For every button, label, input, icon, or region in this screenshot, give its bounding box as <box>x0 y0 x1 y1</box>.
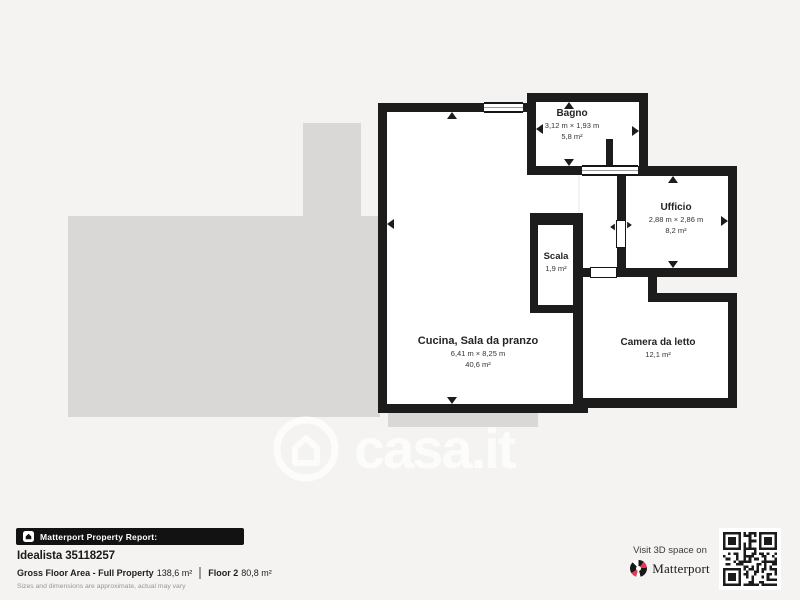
house-circle-icon <box>271 414 341 484</box>
other-floor-silhouette <box>303 123 361 216</box>
direction-arrow-icon <box>447 112 457 119</box>
visit-3d-text: Visit 3D space on <box>612 545 728 556</box>
matterport-logo-icon <box>630 560 647 577</box>
room-area: 5,8 m² <box>545 133 599 141</box>
wall-segment <box>578 398 737 408</box>
room-name: Camera da letto <box>620 337 695 348</box>
disclaimer-text: Sizes and dimensions are approximate, ac… <box>17 583 186 590</box>
room-label-scala: Scala 1,9 m² <box>544 252 569 273</box>
wall-segment <box>378 103 387 413</box>
direction-arrow-icon <box>627 222 632 229</box>
door-marker <box>616 220 626 248</box>
floor-metrics: Gross Floor Area - Full Property 138,6 m… <box>17 567 272 579</box>
direction-arrow-icon <box>447 397 457 404</box>
direction-arrow-icon <box>387 219 394 229</box>
qr-code <box>719 528 781 590</box>
wall-segment <box>617 247 626 268</box>
wall-segment <box>527 166 583 175</box>
room-dimensions: 6,41 m × 8,25 m <box>418 350 538 358</box>
wall-segment <box>639 93 648 175</box>
room-label-cucina: Cucina, Sala da pranzo 6,41 m × 8,25 m 4… <box>418 335 538 369</box>
room-area: 40,6 m² <box>418 361 538 369</box>
room-name: Cucina, Sala da pranzo <box>418 335 538 347</box>
direction-arrow-icon <box>536 124 543 134</box>
matterport-wordmark: Matterport <box>652 561 710 577</box>
room-area: 12,1 m² <box>620 351 695 359</box>
wall-segment <box>527 93 536 175</box>
wall-segment <box>378 103 484 112</box>
gfa-label: Gross Floor Area - Full Property <box>17 568 154 578</box>
room-area: 1,9 m² <box>544 265 569 273</box>
qr-code-image <box>723 532 777 586</box>
window-marker <box>484 102 523 113</box>
listing-id: Idealista 35118257 <box>17 550 115 562</box>
wall-segment <box>728 293 737 408</box>
wall-segment <box>728 166 737 277</box>
room-name: Scala <box>544 252 569 262</box>
floorplan-screenshot: Bagno 3,12 m × 1,93 m 5,8 m² Ufficio 2,8… <box>0 0 800 600</box>
direction-arrow-icon <box>564 159 574 166</box>
wall-segment <box>378 404 588 413</box>
other-floor-silhouette <box>68 216 380 417</box>
direction-arrow-icon <box>668 176 678 183</box>
wall-segment <box>530 213 538 313</box>
matterport-promo: Visit 3D space on Matterport <box>612 545 728 577</box>
corridor <box>580 170 620 270</box>
direction-arrow-icon <box>721 216 728 226</box>
room-dimensions: 2,88 m × 2,86 m <box>649 216 703 224</box>
room-label-camera: Camera da letto 12,1 m² <box>620 337 695 359</box>
floor-label: Floor 2 <box>208 568 238 578</box>
direction-arrow-icon <box>668 261 678 268</box>
wall-segment <box>573 213 583 407</box>
direction-arrow-icon <box>632 126 639 136</box>
window-marker <box>582 165 638 176</box>
wall-segment <box>648 293 737 302</box>
report-header: Matterport Property Report: <box>40 532 157 542</box>
report-header-bar: Matterport Property Report: <box>16 528 244 545</box>
room-name: Bagno <box>545 108 599 119</box>
room-area: 8,2 m² <box>649 227 703 235</box>
gfa-value: 138,6 m² <box>157 568 193 578</box>
house-icon <box>23 531 34 542</box>
room-dimensions: 3,12 m × 1,93 m <box>545 122 599 130</box>
room-name: Ufficio <box>649 202 703 213</box>
door-marker <box>590 267 617 278</box>
direction-arrow-icon <box>610 224 615 231</box>
room-label-ufficio: Ufficio 2,88 m × 2,86 m 8,2 m² <box>649 202 703 235</box>
wall-segment <box>616 268 658 277</box>
room-label-bagno: Bagno 3,12 m × 1,93 m 5,8 m² <box>545 108 599 141</box>
wall-segment <box>527 93 648 102</box>
divider <box>199 567 201 579</box>
wall-segment <box>617 175 626 221</box>
floor-value: 80,8 m² <box>241 568 272 578</box>
casait-watermark: casa.it <box>271 413 514 485</box>
watermark-text: casa.it <box>354 413 514 485</box>
